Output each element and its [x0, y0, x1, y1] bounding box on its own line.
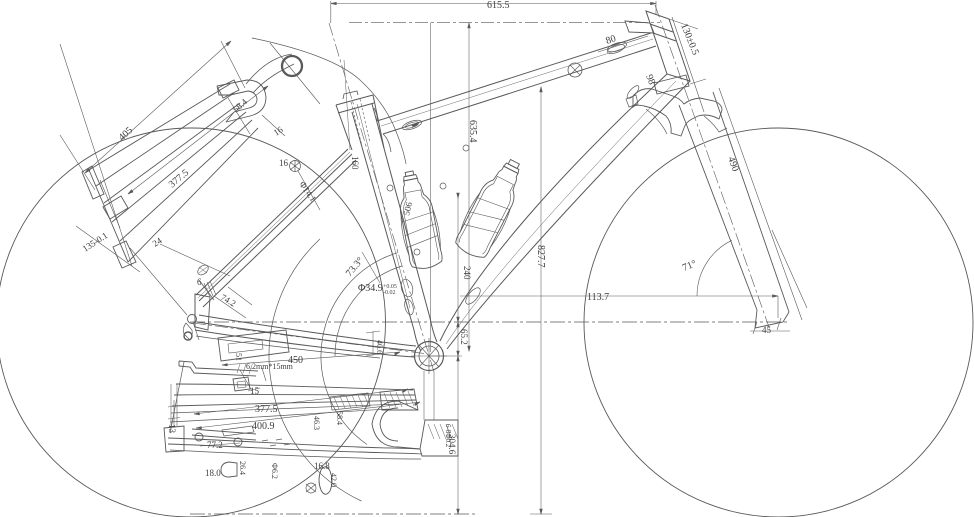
svg-text:16: 16: [279, 158, 289, 168]
svg-text:71°: 71°: [681, 258, 698, 273]
svg-text:490: 490: [725, 155, 740, 173]
svg-text:6.2mm*15mm: 6.2mm*15mm: [246, 362, 294, 371]
svg-text:16.8: 16.8: [314, 461, 330, 471]
svg-text:98: 98: [643, 73, 657, 86]
svg-text:Φ6.2: Φ6.2: [270, 463, 279, 479]
svg-text:65.2: 65.2: [459, 329, 469, 345]
svg-text:45: 45: [762, 325, 772, 335]
svg-text:58.4: 58.4: [335, 411, 344, 425]
svg-text:635.4: 635.4: [467, 120, 478, 143]
svg-text:506: 506: [401, 200, 414, 216]
svg-text:58.4: 58.4: [231, 96, 250, 114]
svg-text:6: 6: [197, 277, 202, 287]
svg-text:16: 16: [272, 124, 285, 138]
svg-text:405: 405: [117, 125, 136, 143]
svg-text:377.5: 377.5: [255, 404, 278, 415]
svg-text:77.2: 77.2: [207, 440, 223, 450]
svg-text:-0.02: -0.02: [383, 290, 396, 296]
svg-text:15: 15: [250, 386, 260, 396]
svg-text:615.5: 615.5: [487, 0, 510, 11]
svg-text:240: 240: [462, 266, 472, 280]
svg-text:827.7: 827.7: [535, 245, 546, 268]
svg-text:40.6: 40.6: [375, 340, 384, 354]
svg-text:6-8Φ0.2: 6-8Φ0.2: [444, 424, 452, 448]
svg-text:113.7: 113.7: [587, 292, 609, 303]
svg-text:160: 160: [350, 156, 360, 170]
svg-text:46.3: 46.3: [312, 416, 321, 430]
svg-text:135-0.1: 135-0.1: [81, 230, 110, 254]
svg-text:73.3°: 73.3°: [344, 255, 366, 279]
svg-text:400.9: 400.9: [252, 421, 275, 432]
svg-text:42.0: 42.0: [329, 473, 338, 487]
svg-text:18.0: 18.0: [205, 468, 221, 478]
svg-text:130±0.5: 130±0.5: [678, 22, 701, 57]
svg-text:51: 51: [234, 353, 243, 361]
svg-text:Φ34.9: Φ34.9: [358, 283, 383, 294]
svg-text:13: 13: [167, 424, 177, 434]
svg-text:26.4: 26.4: [238, 461, 247, 475]
